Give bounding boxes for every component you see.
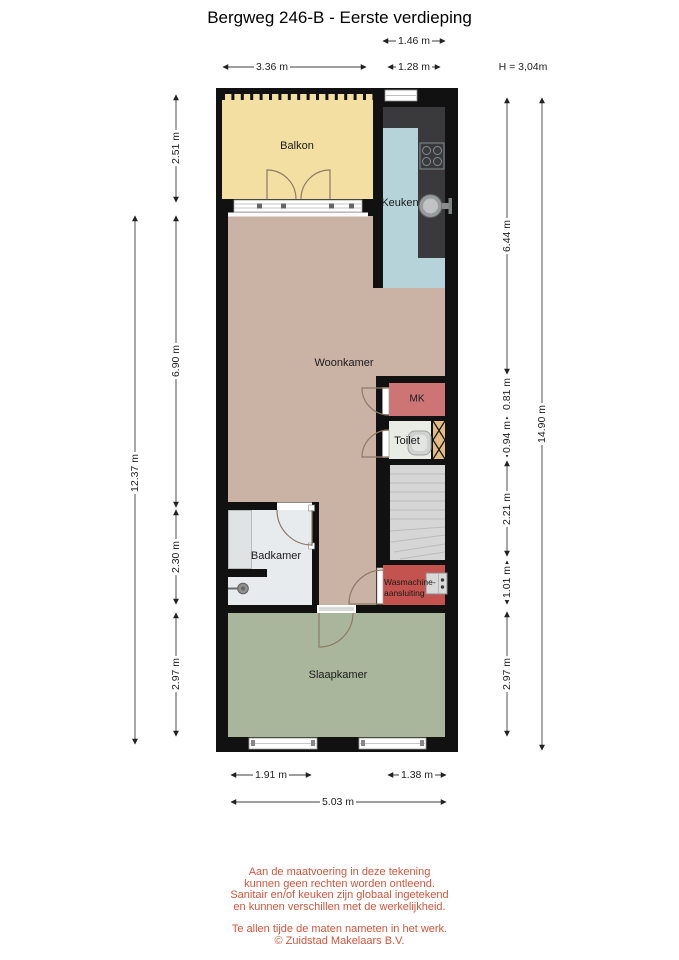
dim-right-mk: 0.81 m — [501, 376, 513, 412]
cooktop-icon — [420, 143, 444, 169]
dim-top-kitchen: 1.28 m — [396, 61, 432, 73]
dim-bottom-window1: 1.91 m — [253, 769, 289, 781]
dim-right-stairs: 2.21 m — [501, 491, 513, 527]
label-wasmachine: Wasmachine- aansluiting — [384, 577, 436, 599]
label-woonkamer: Woonkamer — [314, 357, 373, 369]
label-keuken: Keuken — [381, 197, 418, 209]
badkamer-door-arc — [277, 510, 312, 546]
dim-right-wasmachine: 1.01 m — [501, 564, 513, 600]
dimension-lines — [135, 41, 542, 802]
dim-bottom-window2: 1.38 m — [399, 769, 435, 781]
label-badkamer: Badkamer — [251, 550, 301, 562]
dim-left-badkamer: 2.30 m — [170, 539, 182, 575]
shaft-x-icon — [433, 421, 445, 459]
dim-top-kitchen-outer: 1.46 m — [396, 35, 432, 47]
balcony-door-right-arc — [301, 170, 330, 199]
floorplan-page: Bergweg 246-B - Eerste verdieping — [0, 0, 679, 960]
balcony-sill-window-icon — [228, 200, 368, 217]
ceiling-height-note: H = 3,04m — [497, 61, 550, 73]
bedroom-windows-icon — [249, 738, 426, 749]
mk-door-jamb — [383, 388, 390, 415]
copyright: © Zuidstad Makelaars B.V. — [0, 936, 679, 948]
dim-right-woonkeuken: 6.44 m — [501, 218, 513, 254]
toilet-door-jamb — [383, 431, 390, 458]
sink-icon — [419, 195, 452, 218]
dim-left-total: 12.37 m — [129, 452, 141, 494]
balcony-railing-ticks-icon — [222, 94, 373, 100]
badkamer-door-opening — [277, 503, 312, 511]
stairs-treads-icon — [390, 474, 445, 559]
balcony-door-left-arc — [267, 170, 296, 199]
dim-top-balcony: 3.36 m — [254, 61, 290, 73]
wasmachine-door-jamb — [377, 568, 383, 604]
floorplan-annotations — [0, 0, 679, 960]
slaapkamer-door-arc — [319, 613, 353, 647]
kitchen-window-icon — [385, 90, 417, 101]
label-mk: MK — [410, 394, 425, 405]
dim-right-total: 14.90 m — [536, 403, 548, 445]
door-sill — [319, 607, 354, 611]
shower-icon — [228, 583, 248, 594]
dim-bottom-total: 5.03 m — [320, 796, 356, 808]
label-toilet: Toilet — [394, 435, 420, 447]
dim-left-woonkamer: 6.90 m — [170, 343, 182, 379]
dim-left-slaapkamer: 2.97 m — [170, 656, 182, 692]
dim-left-balkon: 2.51 m — [170, 130, 182, 166]
label-slaapkamer: Slaapkamer — [309, 669, 368, 681]
dim-right-toilet: 0.94 m — [501, 419, 513, 455]
dim-right-slaapkamer: 2.97 m — [501, 656, 513, 692]
label-balkon: Balkon — [280, 140, 314, 152]
disclaimer-text: Aan de maatvoering in deze tekening kunn… — [0, 867, 679, 913]
footer-note: Te allen tijde de maten nameten in het w… — [0, 924, 679, 947]
